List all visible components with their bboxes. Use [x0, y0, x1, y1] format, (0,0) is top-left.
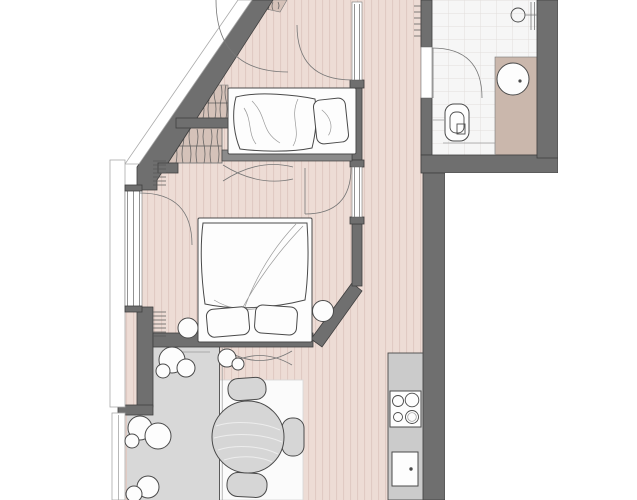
wall-right-mid [352, 224, 362, 286]
single-bed-duvet [234, 94, 317, 151]
outside-right-lower [445, 173, 637, 500]
wall-left-lower [137, 307, 153, 407]
nightstand-left [178, 318, 198, 338]
chair-top [227, 377, 266, 402]
window-right-wall [352, 2, 362, 80]
floor-plan [0, 0, 637, 500]
wall-cap-1 [350, 80, 364, 88]
wall-bath-left-a [421, 0, 432, 47]
wall-divider-left [158, 163, 178, 173]
outside-right-upper [558, 0, 637, 173]
window-cap-bottom [125, 306, 142, 312]
pillow-left [206, 306, 250, 338]
pillow-right [254, 305, 298, 336]
chair-right [282, 418, 304, 456]
chair-bottom [226, 472, 267, 498]
window-cap-top [125, 185, 142, 191]
wall-bath-left-b [421, 98, 432, 155]
wall-closet-L [176, 118, 229, 128]
double-bed-duvet [201, 223, 308, 308]
single-bed-pillow [313, 97, 349, 144]
washbasin [497, 63, 529, 95]
eaves-band-left [110, 160, 125, 407]
toilet-bowl [445, 104, 469, 141]
round-table [212, 401, 284, 473]
double-bed [178, 218, 334, 342]
washbasin-drain [518, 79, 521, 82]
bathroom-doorway [421, 47, 432, 98]
wall-cap-3 [350, 217, 364, 224]
wall-living-right [423, 173, 445, 500]
glass-panel-hallway [352, 167, 362, 217]
sink-drain [409, 467, 412, 470]
single-bed [228, 88, 356, 154]
wall-bath-right [537, 0, 558, 158]
floor-plan-page [0, 0, 637, 500]
kitchen-sink [392, 452, 418, 486]
nightstand-right [313, 301, 334, 322]
kitchen [388, 353, 423, 500]
